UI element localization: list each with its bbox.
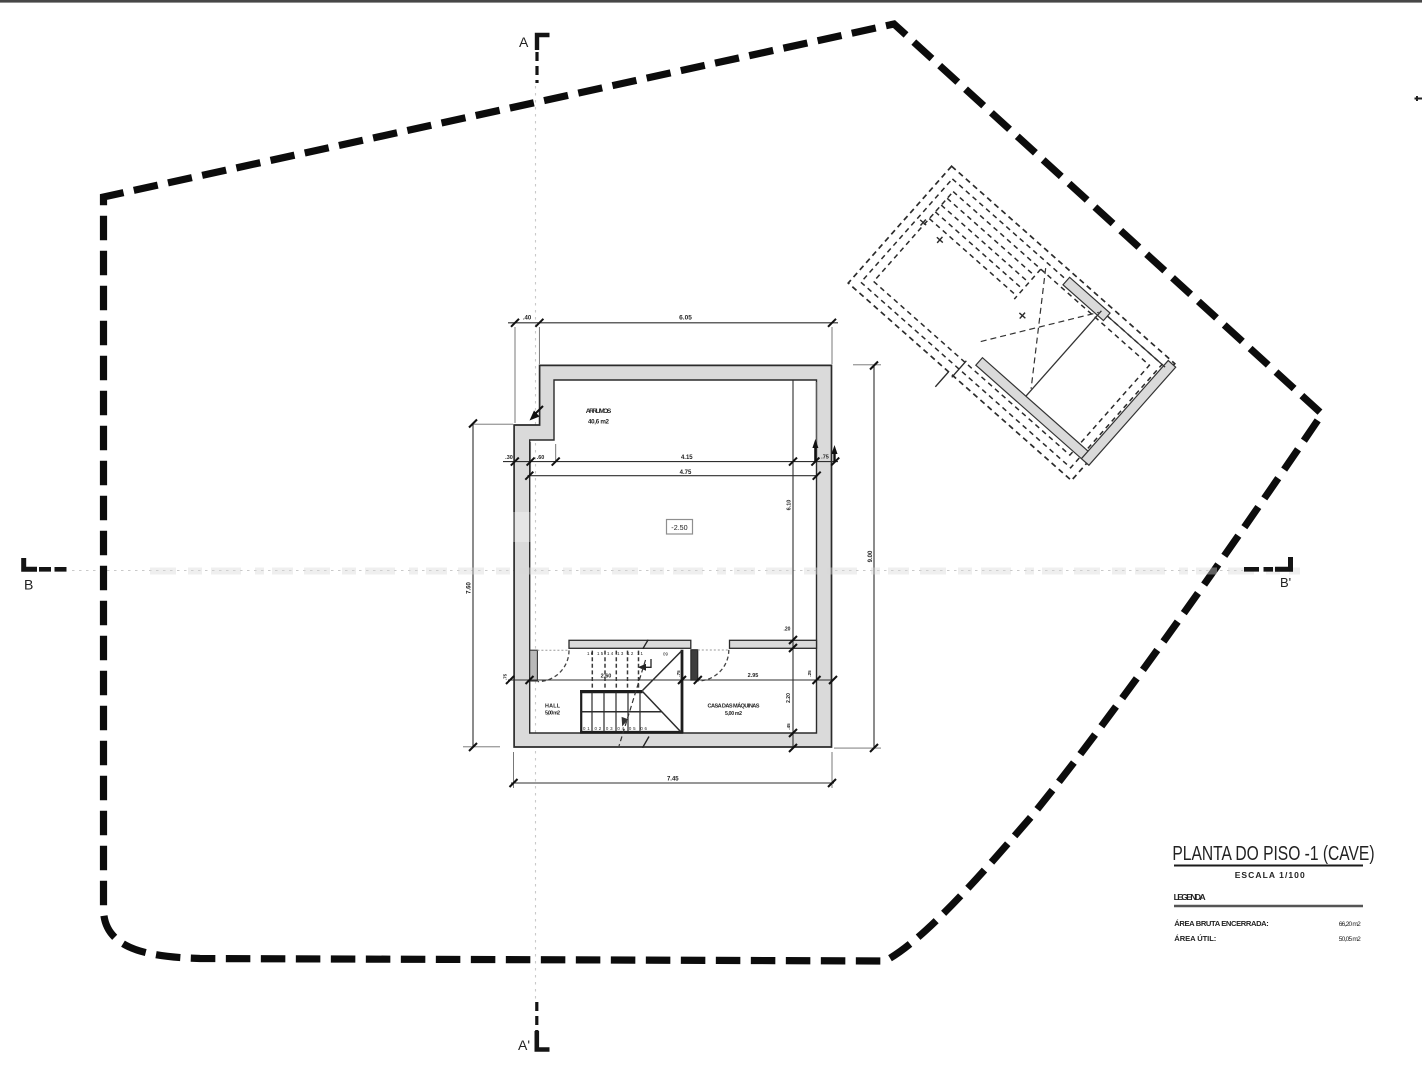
svg-text:LEGENDA: LEGENDA [1174,892,1206,902]
svg-text:9.00: 9.00 [868,550,874,562]
svg-text:4.15: 4.15 [681,455,693,461]
svg-text:6.10: 6.10 [787,500,793,511]
svg-text:7.60: 7.60 [467,582,473,594]
svg-text:ÁREA ÚTIL:: ÁREA ÚTIL: [1174,934,1216,943]
svg-text:.20: .20 [784,627,791,633]
svg-text:ÁREA BRUTA ENCERRADA:: ÁREA BRUTA ENCERRADA: [1174,919,1269,928]
svg-text:2.95: 2.95 [748,673,759,679]
svg-text:ARRUMOS: ARRUMOS [586,408,612,415]
svg-text:.25: .25 [807,670,812,677]
svg-text:CASA DAS MÁQUINAS: CASA DAS MÁQUINAS [708,703,760,710]
svg-text:16 15 14 13 12 11: 16 15 14 13 12 11 [587,651,644,656]
svg-text:A: A [519,34,529,50]
svg-text:.30: .30 [505,455,513,461]
svg-text:7.45: 7.45 [667,777,679,783]
svg-text:.45: .45 [786,723,791,730]
svg-text:PLANTA DO PISO -1 (CAVE): PLANTA DO PISO -1 (CAVE) [1172,842,1374,864]
svg-text:HALL: HALL [545,704,561,710]
svg-text:6.05: 6.05 [679,315,692,322]
svg-text:01 02 03 04 05 06: 01 02 03 04 05 06 [583,726,648,731]
svg-text:.75: .75 [821,455,829,461]
svg-text:B: B [24,577,33,593]
svg-text:09: 09 [663,652,668,657]
svg-text:.40: .40 [523,316,532,322]
svg-text:2.20: 2.20 [786,693,792,703]
svg-text:-2.50: -2.50 [671,523,687,532]
svg-text:.60: .60 [537,455,545,461]
svg-text:B': B' [1280,575,1291,590]
svg-text:.75: .75 [676,670,681,677]
svg-text:5,00 m2: 5,00 m2 [725,711,742,717]
svg-text:ESCALA 1/100: ESCALA 1/100 [1235,870,1305,880]
svg-text:.75: .75 [503,673,508,680]
svg-text:50,05 m2: 50,05 m2 [1339,936,1361,943]
svg-text:5,00 m2: 5,00 m2 [545,711,560,717]
svg-text:4.75: 4.75 [680,470,692,476]
svg-text:66,20 m2: 66,20 m2 [1339,921,1361,928]
svg-text:A': A' [518,1037,530,1053]
svg-text:40,6 m2: 40,6 m2 [588,419,610,426]
svg-text:2.60: 2.60 [601,674,612,680]
